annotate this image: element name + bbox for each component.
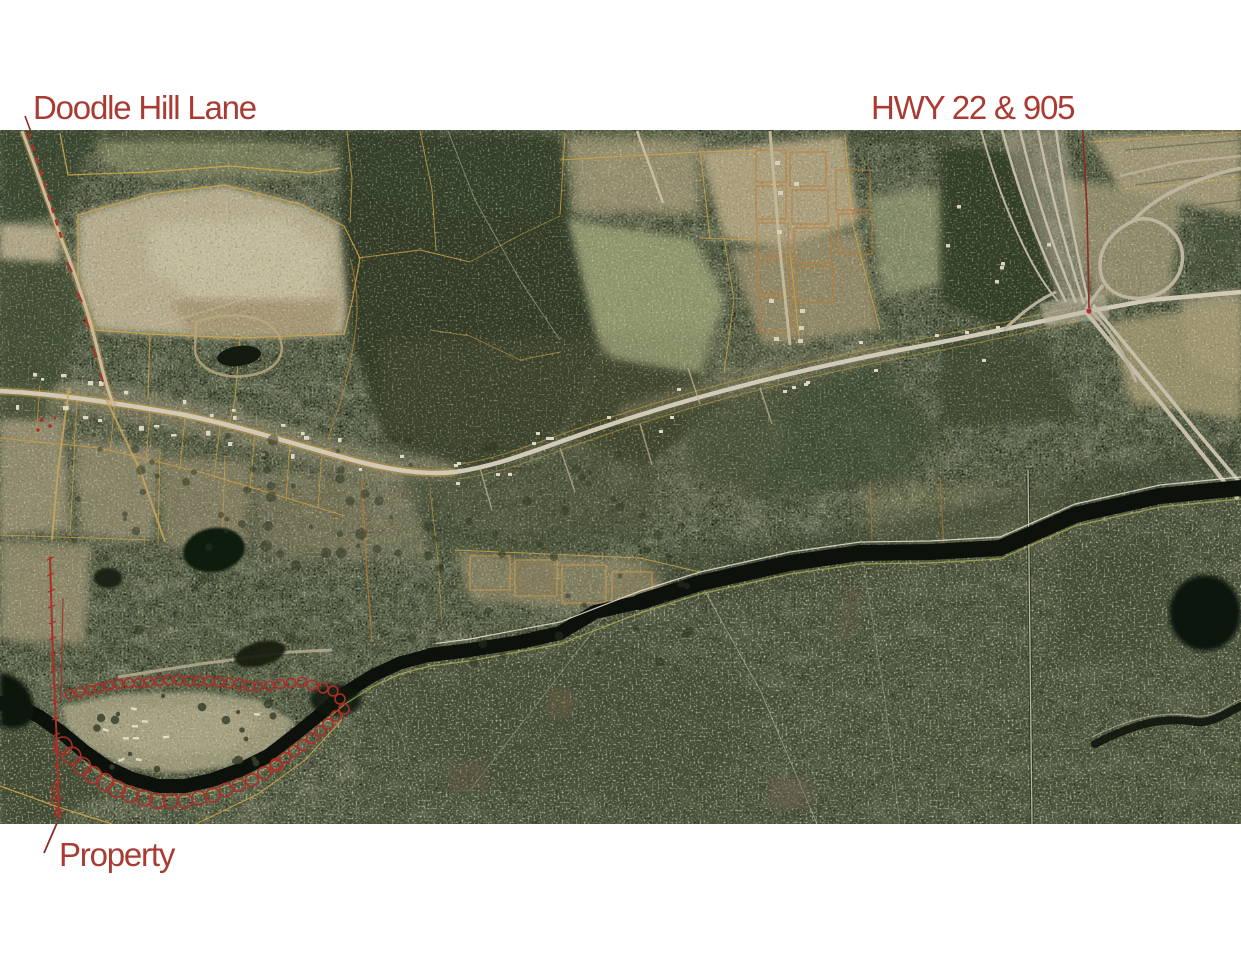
- svg-text:HWY 22 & 905: HWY 22 & 905: [871, 89, 1074, 126]
- svg-text:Property: Property: [59, 836, 176, 873]
- svg-text:Doodle Hill Lane: Doodle Hill Lane: [33, 89, 256, 126]
